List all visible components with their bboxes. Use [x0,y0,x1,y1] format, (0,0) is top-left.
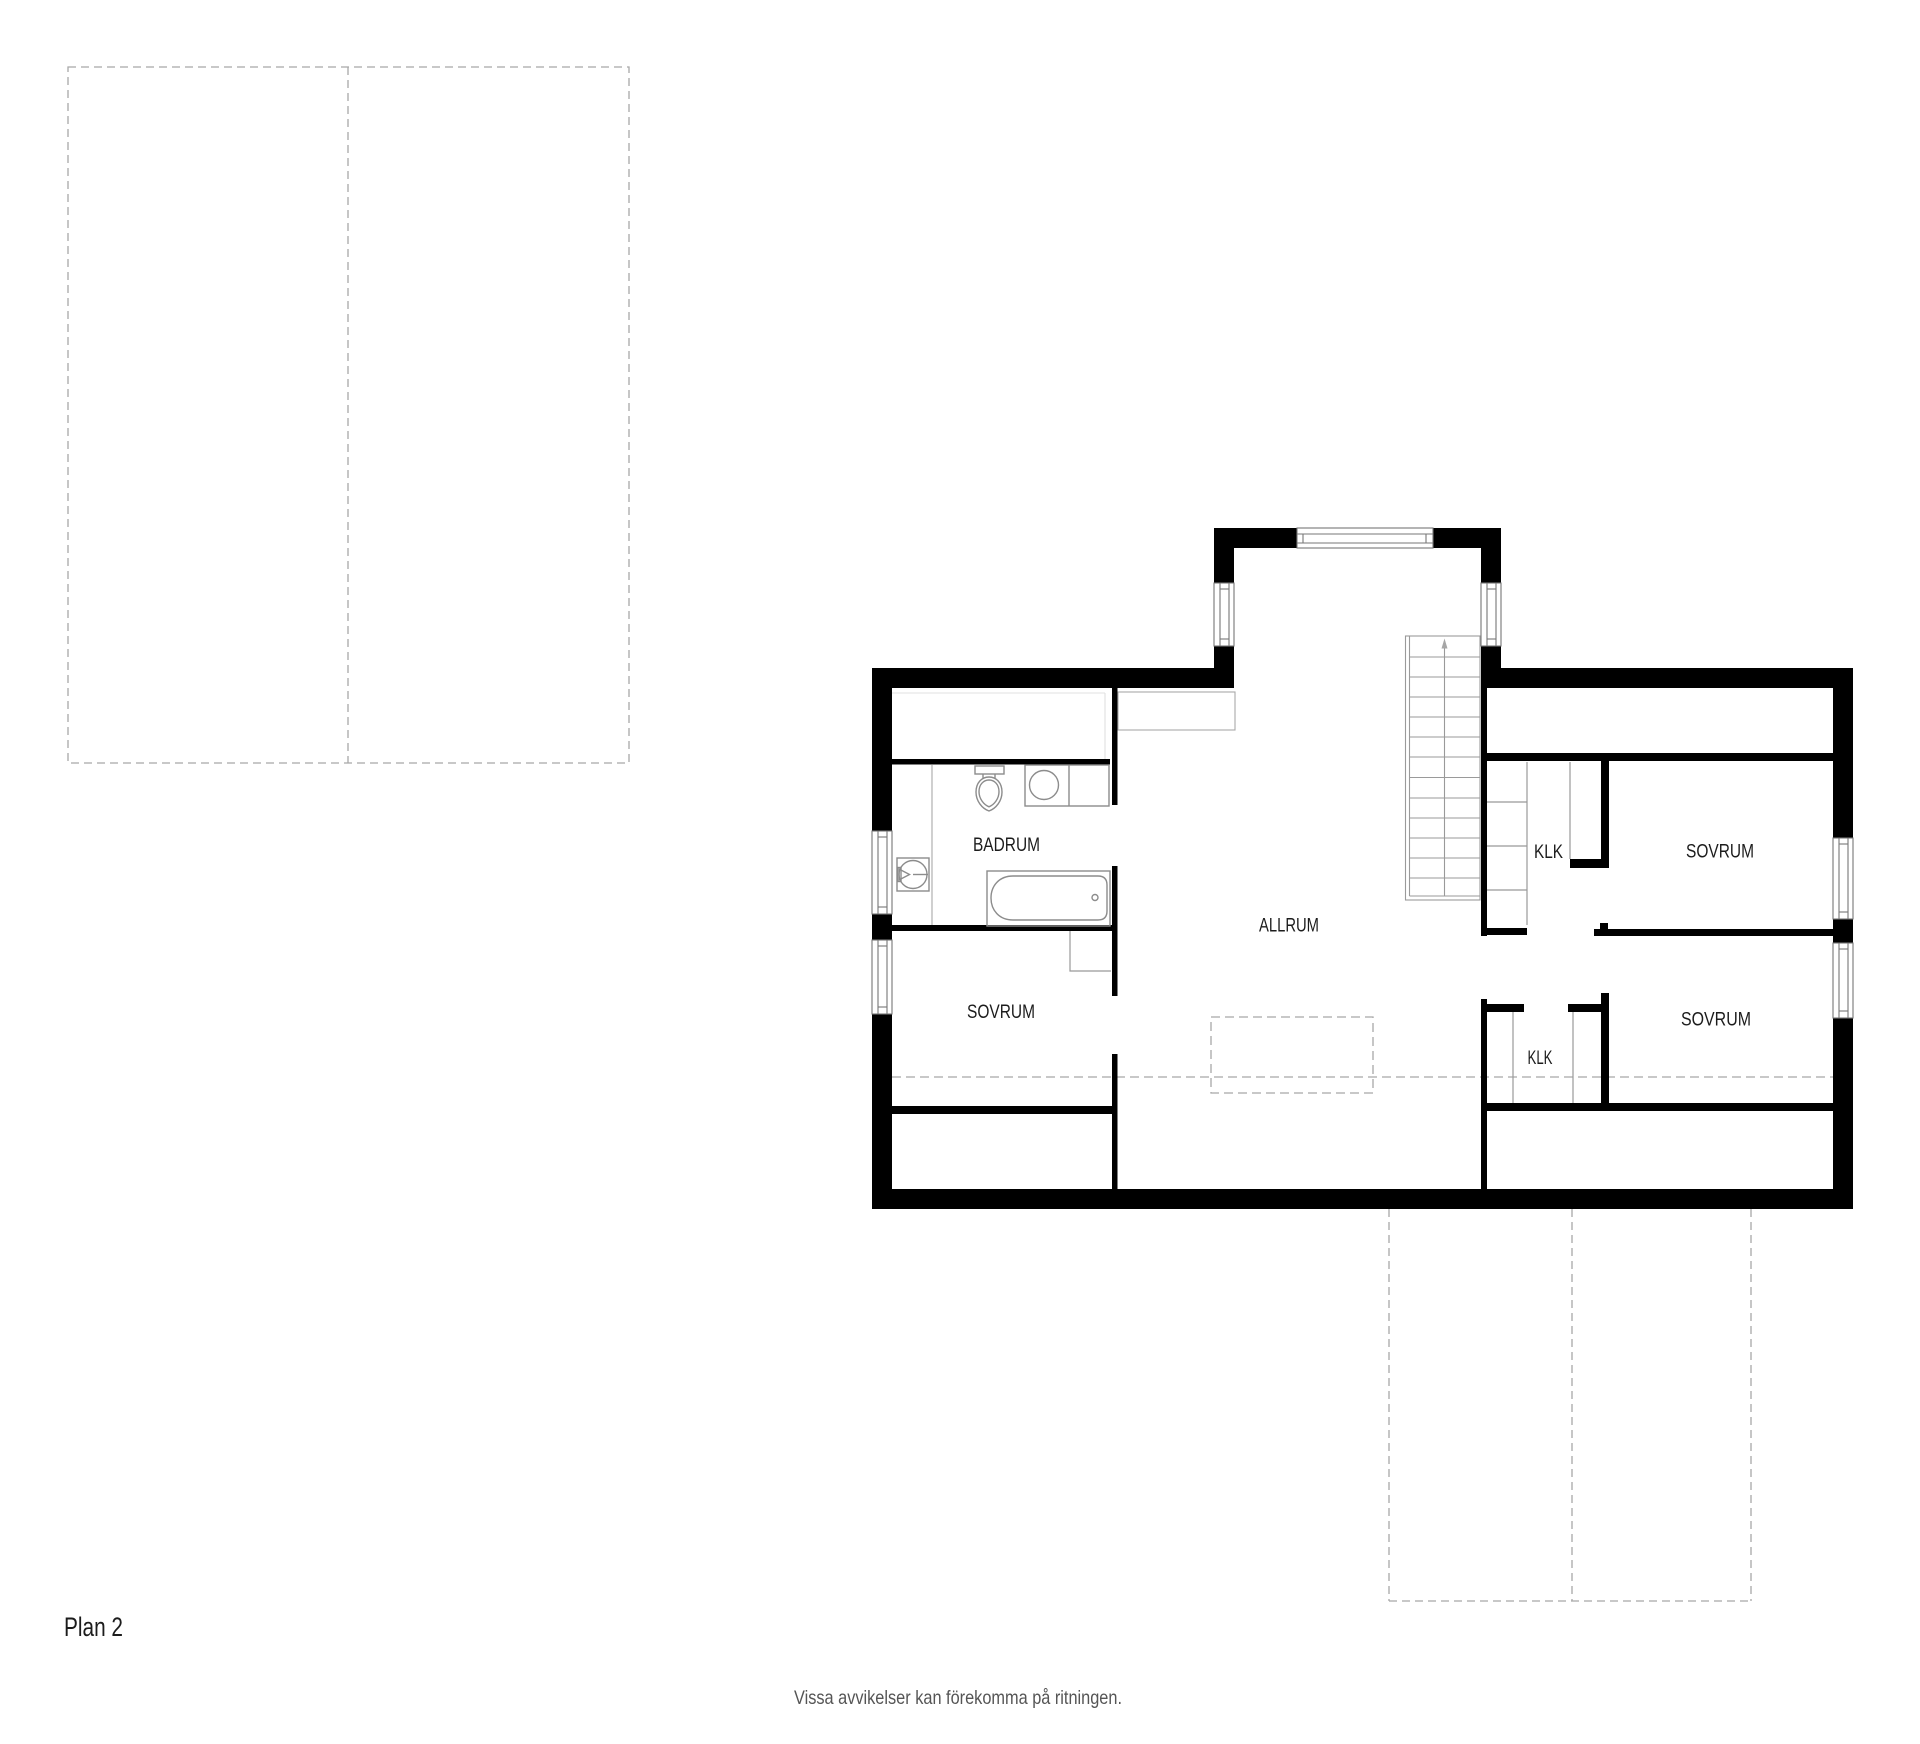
svg-text:Plan 2: Plan 2 [64,1612,123,1642]
svg-text:SOVRUM: SOVRUM [1681,1010,1751,1031]
svg-text:ALLRUM: ALLRUM [1259,916,1319,937]
svg-text:SOVRUM: SOVRUM [967,1002,1035,1023]
svg-text:Vissa avvikelser kan förekomma: Vissa avvikelser kan förekomma på ritnin… [794,1687,1122,1709]
svg-text:BADRUM: BADRUM [973,835,1040,856]
svg-text:KLK: KLK [1528,1048,1553,1069]
svg-text:SOVRUM: SOVRUM [1686,842,1754,863]
svg-text:KLK: KLK [1534,842,1563,863]
